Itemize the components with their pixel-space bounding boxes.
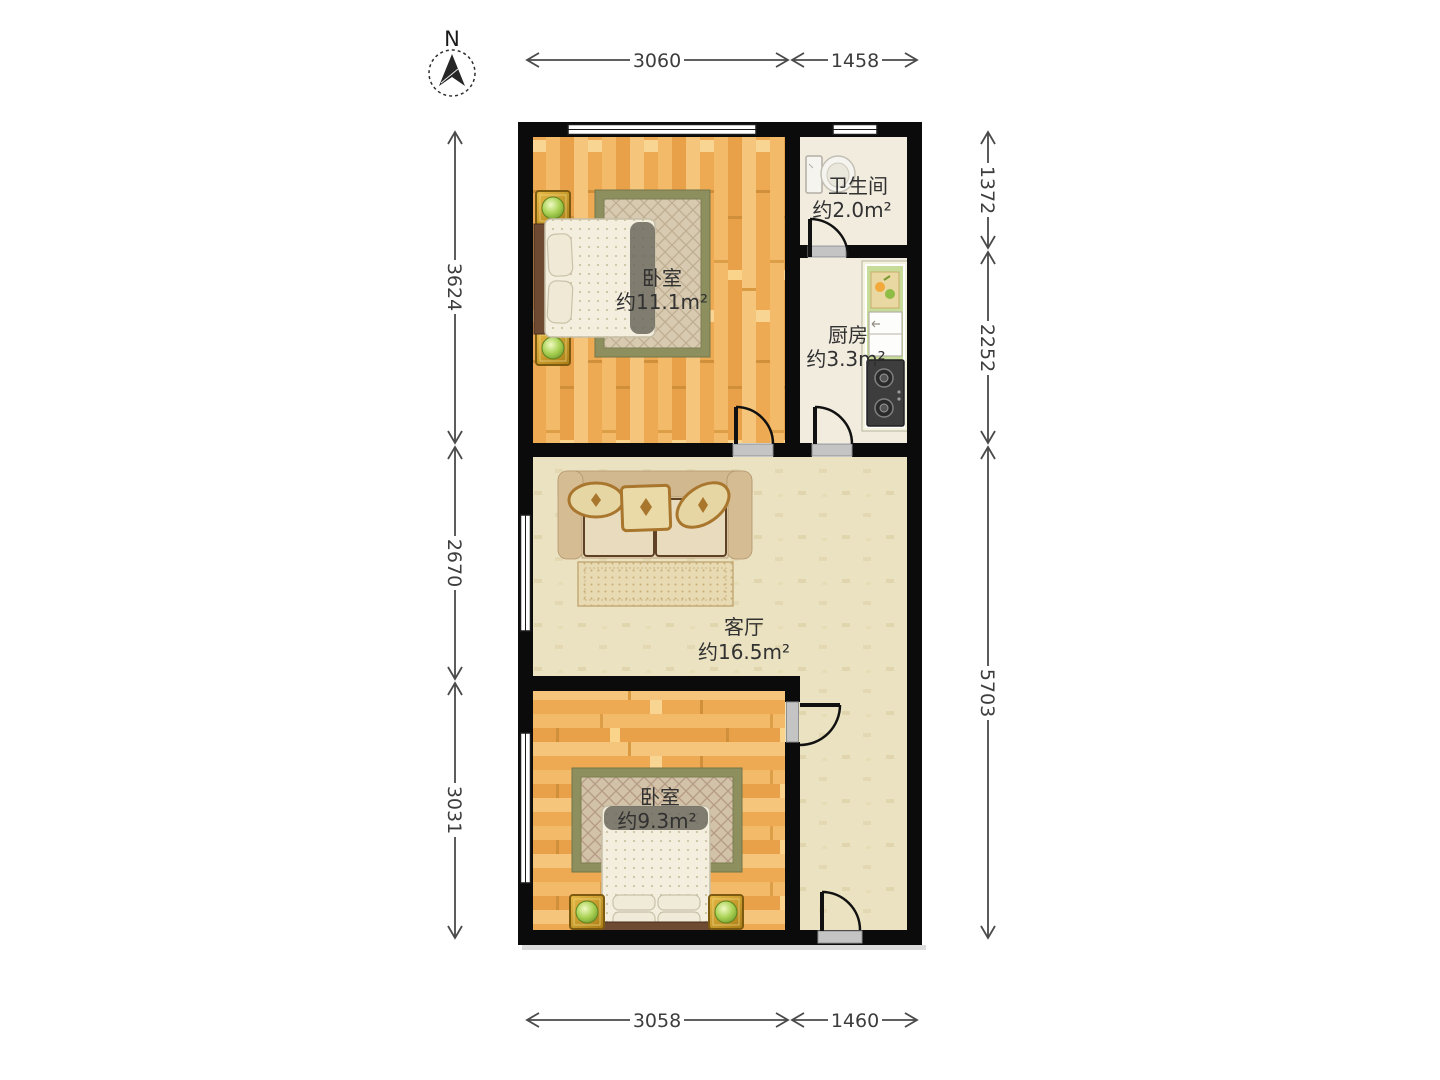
bedroom-top-furniture: [534, 190, 710, 365]
living-room-label: 客厅: [724, 615, 764, 639]
wall-bedroom-bottom-right: [785, 676, 800, 702]
wall-shadow: [522, 945, 926, 950]
dim-label-left-2: 2670: [443, 539, 465, 587]
sofa-pillow-icon: [621, 485, 671, 531]
dim-label-right-1: 1372: [976, 166, 998, 214]
wall-living-top: [852, 443, 922, 457]
dim-label-right-2-group: 2252: [976, 321, 1000, 375]
wall-bath-kitchen: [846, 245, 922, 258]
kitchen-counter: [862, 261, 908, 431]
nightstand-icon: [709, 895, 743, 929]
sofa-pillow-icon: [569, 483, 623, 517]
kitchen-area: 约3.3m²: [806, 347, 885, 371]
nightstand-icon: [570, 895, 604, 929]
pillow-icon: [547, 233, 573, 276]
dim-label-left-2-group: 2670: [443, 536, 467, 590]
lamp-icon: [542, 337, 564, 359]
bedroom-top-label: 卧室: [642, 266, 682, 290]
dim-label-right-2: 2252: [976, 324, 998, 372]
wall-living-top: [773, 443, 812, 457]
living-room-area: 约16.5m²: [698, 640, 790, 664]
dim-label-left-3-group: 3031: [443, 783, 467, 837]
compass-north-label: N: [444, 27, 460, 51]
pillow-icon: [613, 895, 655, 910]
lamp-icon: [715, 901, 737, 923]
dim-label-top-2: 1458: [831, 50, 879, 72]
double-bed-icon: [534, 219, 655, 337]
bathroom-area: 约2.0m²: [812, 198, 891, 222]
dim-label-left-1: 3624: [443, 263, 465, 311]
wall-bedroom-bottom-top: [518, 676, 800, 691]
window-icon: [521, 515, 531, 631]
living-rug-icon: [578, 562, 733, 606]
sofa-icon: [558, 471, 752, 559]
dim-label-right-3: 5703: [976, 669, 998, 717]
dim-label-left-1-group: 3624: [443, 260, 467, 314]
window-icon: [568, 125, 756, 135]
dim-label-right-1-group: 1372: [976, 163, 1000, 217]
pillow-icon: [547, 280, 573, 323]
dim-label-bottom-2: 1460: [831, 1010, 879, 1032]
dim-label-left-3: 3031: [443, 786, 465, 834]
dim-label-top-1: 3060: [633, 50, 681, 72]
dim-label-bottom-1: 3058: [633, 1010, 681, 1032]
window-icon: [833, 125, 877, 135]
floorplan-drawing: 卧室 约11.1m² 卫生间 约2.0m² 厨房 约3.3m² 客厅 约16.5…: [0, 0, 1440, 1080]
bedroom-bottom-label: 卧室: [640, 785, 680, 809]
kitchen-label: 厨房: [828, 323, 868, 347]
window-icon: [521, 733, 531, 883]
compass: N: [429, 27, 475, 96]
bedroom-bottom-area: 约9.3m²: [617, 809, 696, 833]
pillow-icon: [658, 895, 700, 910]
wall-bedroom-bath-divider: [785, 122, 800, 457]
wall-bedroom-bottom-right: [785, 742, 800, 945]
wall-bath-kitchen: [785, 245, 808, 258]
lamp-icon: [542, 197, 564, 219]
wall-living-top: [518, 443, 733, 457]
bathroom-label: 卫生间: [828, 174, 888, 198]
floorplan-page: 卧室 约11.1m² 卫生间 约2.0m² 厨房 约3.3m² 客厅 约16.5…: [0, 0, 1440, 1080]
lamp-icon: [576, 901, 598, 923]
dim-label-right-3-group: 5703: [976, 666, 1000, 720]
cutting-board-icon: [871, 272, 899, 308]
bedroom-top-area: 约11.1m²: [616, 290, 708, 314]
